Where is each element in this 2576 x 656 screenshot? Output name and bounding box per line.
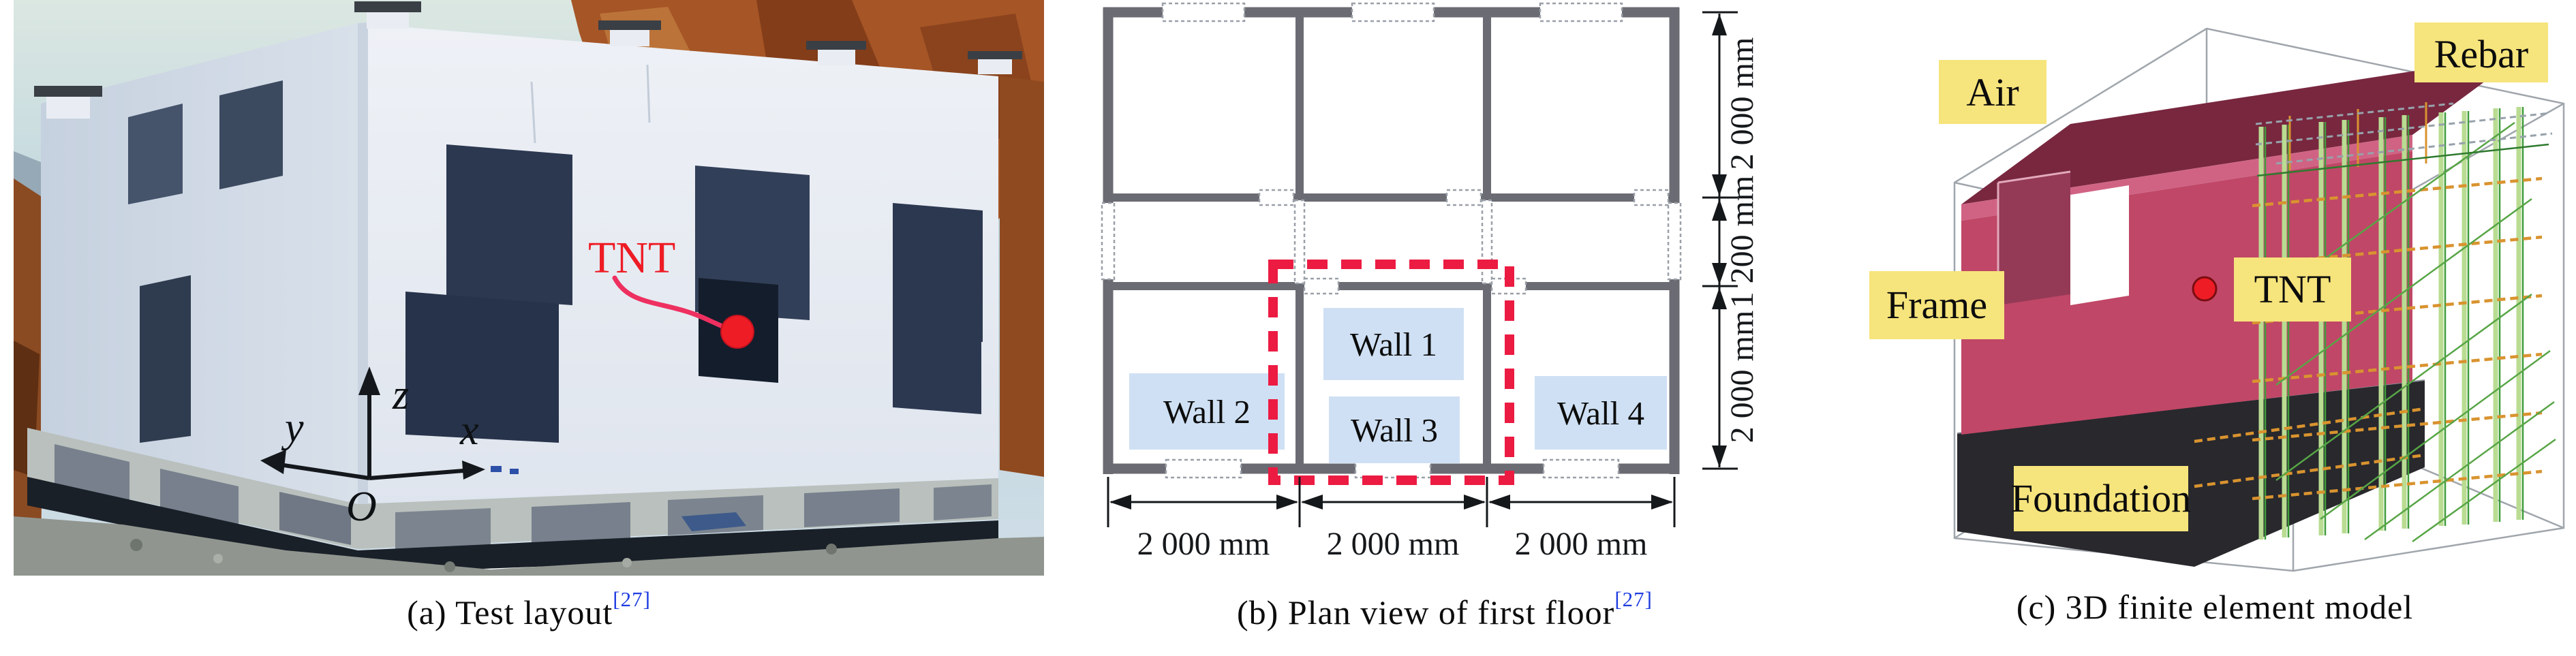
- dim-bay2: 2 000 mm: [1327, 526, 1460, 562]
- test-building: [34, 1, 1022, 504]
- tnt-charge-dot: [721, 315, 754, 348]
- right-dimensions: 2 000 mm 1 200 mm 2 000 mm: [1702, 12, 1760, 469]
- axis-y-label: y: [281, 405, 304, 451]
- dim-corridor: 1 200 mm: [1724, 176, 1760, 309]
- tnt-label: TNT: [588, 233, 675, 283]
- figure-three-panel: z y x O TNT: [0, 0, 2576, 656]
- sensor-marks: [491, 466, 502, 472]
- axis-x-label: x: [459, 407, 479, 454]
- wall-labels: Wall 1 Wall 2 Wall 3 Wall 4: [1129, 308, 1667, 463]
- tnt-charge-dot-model: [2193, 277, 2216, 300]
- axis-origin-label: O: [346, 484, 377, 530]
- caption-b: (b) Plan view of first floor[27]: [1063, 587, 1826, 632]
- frame-label: Frame: [1886, 283, 1987, 327]
- caption-a-ref: [27]: [613, 587, 651, 611]
- axis-z-label: z: [392, 372, 409, 418]
- caption-c-text: (c) 3D finite element model: [2017, 588, 2413, 626]
- caption-c: (c) 3D finite element model: [1854, 587, 2576, 627]
- dim-row-top: 2 000 mm: [1724, 37, 1760, 170]
- caption-a: (a) Test layout[27]: [14, 587, 1044, 632]
- dim-bay1: 2 000 mm: [1137, 526, 1270, 562]
- panel-a-test-photo: z y x O TNT: [14, 0, 1044, 576]
- dim-row-bottom: 2 000 mm: [1724, 311, 1760, 443]
- caption-b-text: (b) Plan view of first floor: [1237, 593, 1614, 631]
- rebar-label: Rebar: [2434, 32, 2529, 76]
- tnt-model-label: TNT: [2254, 267, 2331, 311]
- left-face-door: [140, 275, 191, 443]
- panel-b-plan-view: Wall 1 Wall 2 Wall 3 Wall 4 2 000 mm 2 0…: [1063, 0, 1826, 576]
- wall-3-label: Wall 3: [1351, 411, 1438, 449]
- caption-a-text: (a) Test layout: [407, 593, 613, 631]
- panel-c-fe-model: Air Rebar Frame TNT Foundation: [1840, 0, 2576, 576]
- foundation-label: Foundation: [2011, 476, 2191, 520]
- caption-b-ref: [27]: [1614, 587, 1653, 611]
- bottom-dimensions: 2 000 mm 2 000 mm 2 000 mm: [1108, 477, 1674, 562]
- door-opening: [2070, 185, 2129, 305]
- wall-4-label: Wall 4: [1557, 394, 1644, 432]
- wall-2-label: Wall 2: [1163, 393, 1251, 431]
- window-recess: [1998, 172, 2070, 305]
- air-label: Air: [1966, 70, 2019, 114]
- dim-bay3: 2 000 mm: [1515, 526, 1648, 562]
- wall-1-label: Wall 1: [1350, 326, 1437, 363]
